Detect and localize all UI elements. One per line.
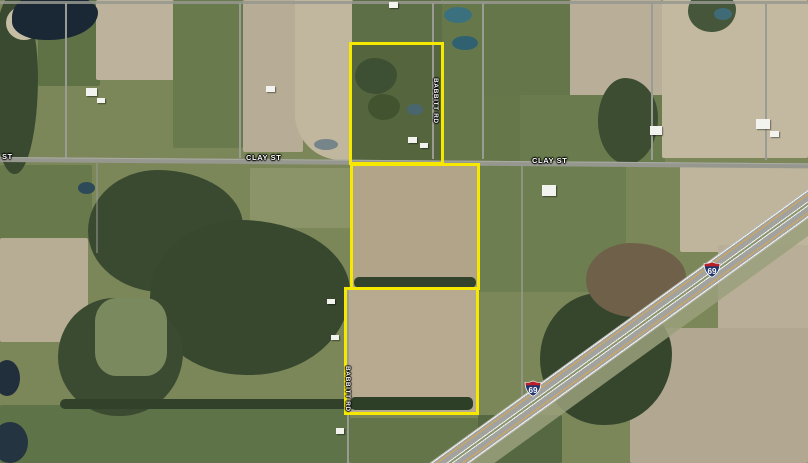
- satellite-map-canvas[interactable]: STCLAY STCLAY STBABBITT RDBABBITT RD 696…: [0, 0, 808, 463]
- svg-text:69: 69: [707, 267, 717, 276]
- svg-text:69: 69: [528, 386, 538, 395]
- highway-shields-layer: 6969: [0, 0, 808, 463]
- interstate-69-shield-north-icon: 69: [703, 261, 721, 278]
- interstate-69-shield-south-icon: 69: [524, 380, 542, 397]
